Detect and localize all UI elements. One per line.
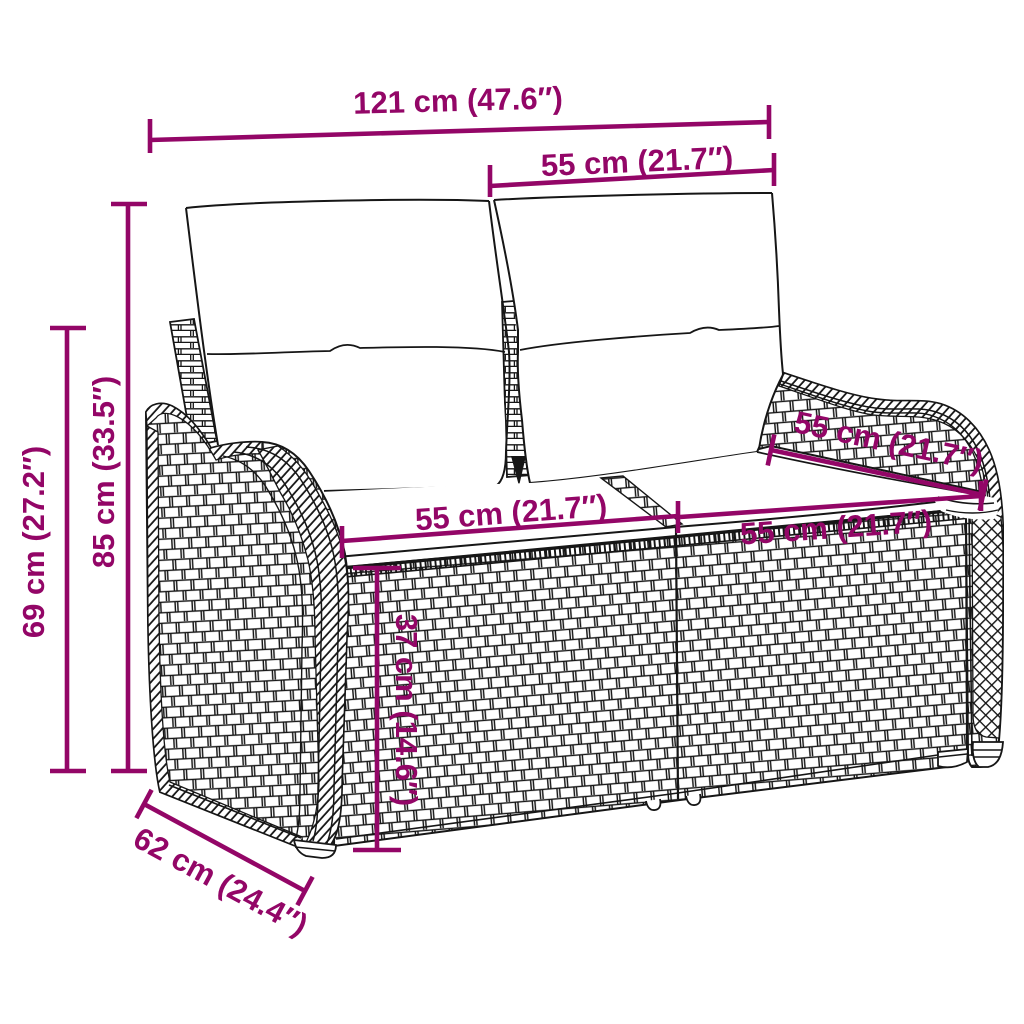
svg-text:37 cm (14.6″): 37 cm (14.6″): [389, 614, 424, 806]
svg-text:85 cm (33.5″): 85 cm (33.5″): [86, 376, 121, 568]
svg-text:121 cm (47.6″): 121 cm (47.6″): [353, 80, 563, 120]
svg-text:69 cm (27.2″): 69 cm (27.2″): [16, 446, 51, 638]
